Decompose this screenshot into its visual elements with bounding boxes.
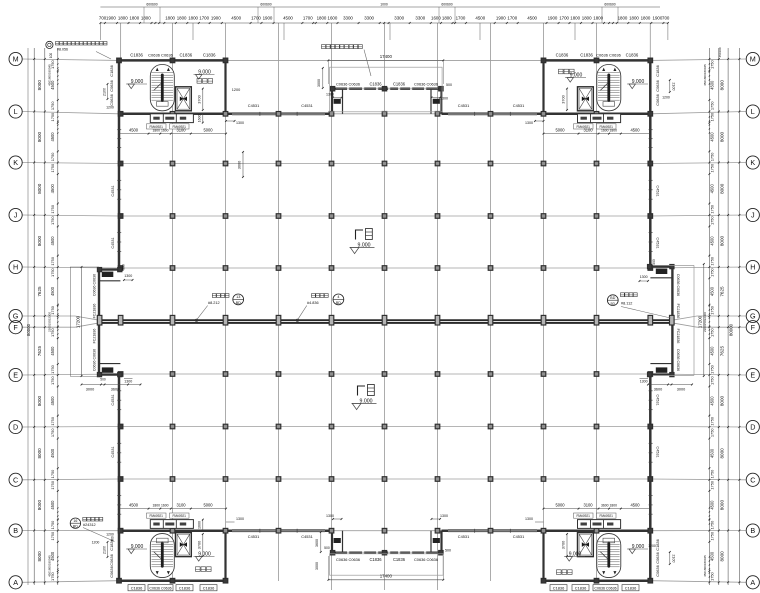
svg-text:C0636 C0636: C0636 C0636 [93, 349, 97, 371]
svg-text:1900: 1900 [496, 16, 506, 21]
svg-text:4500: 4500 [710, 236, 715, 246]
svg-text:3700: 3700 [562, 95, 566, 103]
svg-text:5000: 5000 [203, 503, 213, 508]
svg-text:#8.212: #8.212 [208, 301, 220, 305]
svg-text:L: L [14, 107, 18, 116]
svg-text:A: A [750, 578, 755, 587]
svg-text:C0636 C0636: C0636 C0636 [414, 81, 438, 86]
svg-text:1300: 1300 [124, 274, 132, 278]
svg-text:B: B [13, 526, 18, 535]
svg-text:D: D [13, 423, 18, 432]
svg-text:8000: 8000 [720, 183, 725, 194]
svg-text:1750: 1750 [50, 520, 55, 529]
svg-text:1750: 1750 [50, 428, 55, 437]
svg-text:1300: 1300 [326, 514, 334, 518]
svg-text:C0636 C0636: C0636 C0636 [93, 274, 97, 296]
svg-text:1300: 1300 [236, 517, 244, 521]
svg-text:C4531: C4531 [513, 103, 524, 108]
svg-text:1300: 1300 [640, 275, 648, 279]
svg-text:1750: 1750 [50, 163, 55, 172]
svg-text:7625: 7625 [37, 346, 42, 357]
svg-text:1800: 1800 [188, 16, 198, 21]
svg-text:3000: 3000 [86, 388, 94, 392]
svg-text:C1836: C1836 [203, 53, 216, 58]
svg-text:8000: 8000 [37, 551, 42, 562]
svg-text:1800: 1800 [570, 16, 580, 21]
svg-text:7625: 7625 [37, 286, 42, 297]
svg-text:1800: 1800 [629, 16, 639, 21]
svg-text:4500: 4500 [50, 346, 55, 356]
svg-text:4500: 4500 [630, 127, 640, 132]
svg-text:230015032300: 230015032300 [48, 312, 52, 332]
svg-text:J: J [14, 211, 18, 220]
svg-text:FC21836: FC21836 [676, 304, 680, 319]
svg-text:C0636: C0636 [655, 565, 660, 576]
svg-text:1200: 1200 [106, 106, 114, 110]
svg-text:4500: 4500 [50, 286, 55, 296]
svg-text:13: 13 [236, 295, 240, 299]
svg-text:1900: 1900 [548, 16, 558, 21]
svg-text:3300: 3300 [364, 16, 374, 21]
svg-text:C1836: C1836 [131, 585, 142, 590]
svg-text:1750: 1750 [50, 216, 55, 225]
svg-text:C0636 C0636: C0636 C0636 [676, 274, 680, 296]
svg-text:4500: 4500 [710, 346, 715, 356]
svg-text:C1836: C1836 [109, 65, 114, 76]
svg-text:500: 500 [445, 549, 451, 553]
svg-text:700: 700 [662, 16, 670, 21]
svg-text:E: E [13, 371, 18, 380]
svg-text:80000: 80000 [729, 323, 734, 336]
svg-text:100: 100 [49, 53, 53, 59]
svg-text:C0636: C0636 [655, 80, 660, 91]
svg-text:C4531: C4531 [513, 534, 524, 539]
svg-text:3100: 3100 [583, 127, 593, 132]
svg-text:2100: 2100 [671, 554, 675, 562]
svg-text:4500: 4500 [710, 80, 715, 90]
svg-text:500: 500 [100, 378, 106, 382]
svg-text:M: M [750, 55, 756, 64]
svg-text:300: 300 [111, 536, 115, 542]
svg-text:BD: BD [236, 301, 241, 305]
svg-text:1750: 1750 [710, 112, 715, 121]
svg-text:1750: 1750 [710, 267, 715, 276]
svg-text:1600: 1600 [197, 114, 201, 122]
svg-text:1750: 1750 [710, 520, 715, 529]
svg-text:C0636 C0636: C0636 C0636 [414, 557, 438, 562]
svg-text:4500: 4500 [129, 127, 139, 132]
svg-text:17200: 17200 [75, 315, 80, 328]
svg-text:500: 500 [122, 264, 126, 270]
svg-text:1750: 1750 [50, 101, 55, 110]
svg-text:8000: 8000 [37, 395, 42, 406]
svg-text:1750: 1750 [50, 469, 55, 478]
svg-text:C4531: C4531 [656, 185, 660, 196]
svg-text:1800: 1800 [118, 16, 128, 21]
svg-text:600600: 600600 [146, 3, 157, 7]
svg-text:2100: 2100 [671, 82, 675, 90]
svg-text:1800: 1800 [442, 16, 452, 21]
svg-text:4501800180045: 4501800180045 [48, 555, 52, 577]
svg-text:4500: 4500 [475, 16, 485, 21]
svg-text:4500: 4500 [710, 448, 715, 458]
svg-text:FC21836: FC21836 [93, 304, 97, 319]
svg-text:BD: BD [73, 525, 78, 529]
svg-text:3300: 3300 [343, 16, 353, 21]
svg-text:C0636: C0636 [109, 554, 114, 565]
svg-text:1750: 1750 [50, 256, 55, 265]
svg-text:8000: 8000 [720, 235, 725, 246]
svg-text:C1836: C1836 [575, 585, 586, 590]
svg-text:17200: 17200 [697, 315, 702, 328]
svg-text:C4531: C4531 [656, 394, 660, 405]
svg-text:8000: 8000 [37, 448, 42, 459]
svg-text:J: J [751, 211, 755, 220]
svg-text:3700: 3700 [562, 541, 566, 549]
svg-text:4501800180045: 4501800180045 [48, 64, 52, 86]
svg-text:8000: 8000 [37, 183, 42, 194]
svg-text:3100: 3100 [176, 127, 186, 132]
svg-text:C4531: C4531 [111, 237, 115, 248]
svg-text:1750: 1750 [710, 480, 715, 489]
svg-text:#8.112: #8.112 [621, 302, 632, 306]
svg-text:1800: 1800 [618, 16, 628, 21]
svg-text:4500: 4500 [50, 396, 55, 406]
svg-text:#4.836: #4.836 [307, 301, 319, 305]
svg-text:FC21836: FC21836 [676, 329, 680, 344]
svg-text:8000: 8000 [720, 395, 725, 406]
svg-text:1750: 1750 [710, 428, 715, 437]
svg-text:1750: 1750 [710, 101, 715, 110]
svg-text:3000: 3000 [238, 161, 242, 169]
svg-text:7625: 7625 [720, 286, 725, 297]
svg-text:500: 500 [652, 259, 656, 265]
svg-text:1750: 1750 [50, 112, 55, 121]
svg-text:C1836: C1836 [179, 585, 190, 590]
svg-text:5D: 5D [610, 302, 615, 306]
svg-text:FM#0921: FM#0921 [576, 514, 590, 518]
svg-text:C0636 C0636: C0636 C0636 [336, 81, 360, 86]
svg-text:600600: 600600 [604, 3, 615, 7]
svg-text:4501800180045: 4501800180045 [703, 64, 707, 86]
svg-text:C4531: C4531 [248, 534, 259, 539]
svg-text:4500: 4500 [231, 16, 241, 21]
svg-text:C: C [750, 475, 755, 484]
svg-text:8000: 8000 [37, 131, 42, 142]
svg-text:C1836: C1836 [369, 557, 382, 562]
svg-text:1900: 1900 [211, 16, 221, 21]
svg-text:4500: 4500 [527, 16, 537, 21]
svg-text:1750: 1750 [710, 204, 715, 213]
svg-text:1200: 1200 [648, 544, 656, 548]
svg-text:1750: 1750 [50, 376, 55, 385]
svg-text:3300: 3300 [394, 16, 404, 21]
svg-text:3000: 3000 [677, 388, 685, 392]
svg-text:1750: 1750 [710, 152, 715, 161]
svg-text:C4531: C4531 [248, 103, 259, 108]
svg-text:1700: 1700 [199, 16, 209, 21]
svg-text:1750: 1750 [50, 152, 55, 161]
svg-text:K: K [13, 158, 18, 167]
svg-text:1750: 1750 [710, 216, 715, 225]
svg-text:C1836: C1836 [655, 65, 660, 76]
svg-text:4500: 4500 [50, 132, 55, 142]
svg-text:3600: 3600 [654, 388, 662, 392]
svg-text:1200: 1200 [106, 533, 114, 537]
svg-text:C1836: C1836 [626, 53, 639, 58]
svg-text:5000: 5000 [203, 127, 213, 132]
svg-text:1750: 1750 [710, 328, 715, 337]
svg-text:3000: 3000 [315, 562, 319, 570]
svg-text:500: 500 [446, 83, 452, 87]
svg-text:C0636: C0636 [109, 94, 114, 105]
svg-text:C4531: C4531 [301, 534, 312, 539]
svg-text:C0636 C0636: C0636 C0636 [594, 586, 616, 590]
svg-text:8000: 8000 [37, 80, 42, 91]
svg-text:1800: 1800 [165, 16, 175, 21]
svg-text:1200: 1200 [92, 541, 100, 545]
svg-text:1750: 1750 [50, 480, 55, 489]
svg-text:BD: BD [336, 301, 341, 305]
svg-text:2100: 2100 [102, 88, 106, 96]
svg-text:B: B [750, 526, 755, 535]
svg-text:C1836: C1836 [553, 585, 564, 590]
svg-text:4500: 4500 [50, 448, 55, 458]
svg-text:C0636 C0636: C0636 C0636 [336, 557, 360, 562]
svg-text:1700: 1700 [507, 16, 517, 21]
svg-text:1750: 1750 [50, 267, 55, 276]
svg-text:1800 1600: 1800 1600 [152, 128, 168, 132]
svg-text:1750: 1750 [50, 416, 55, 425]
svg-text:4500: 4500 [710, 132, 715, 142]
svg-text:16: 16 [73, 519, 77, 523]
svg-text:C0636: C0636 [655, 552, 660, 563]
svg-text:1300: 1300 [640, 380, 648, 384]
svg-text:1750: 1750 [50, 364, 55, 373]
svg-text:F: F [13, 323, 18, 332]
svg-text:1800: 1800 [177, 16, 187, 21]
svg-text:7625: 7625 [720, 346, 725, 357]
svg-text:4500: 4500 [710, 184, 715, 194]
svg-text:C4531: C4531 [458, 534, 469, 539]
svg-text:C1836: C1836 [393, 557, 406, 562]
svg-text:4500: 4500 [710, 551, 715, 561]
svg-text:1600: 1600 [328, 16, 338, 21]
svg-text:1300: 1300 [525, 121, 533, 125]
svg-text:FM#0921: FM#0921 [172, 514, 186, 518]
svg-text:C1836: C1836 [130, 53, 143, 58]
svg-text:F: F [751, 323, 756, 332]
svg-text:4500: 4500 [129, 503, 139, 508]
svg-text:1750: 1750 [710, 469, 715, 478]
svg-text:600600: 600600 [441, 3, 452, 7]
svg-text:1600: 1600 [431, 16, 441, 21]
svg-text:4500: 4500 [710, 286, 715, 296]
svg-text:BD: BD [610, 296, 615, 300]
svg-text:1800: 1800 [582, 16, 592, 21]
svg-text:2100: 2100 [102, 546, 106, 554]
svg-text:4500: 4500 [630, 503, 640, 508]
svg-text:1800: 1800 [141, 16, 151, 21]
svg-text:1300: 1300 [440, 97, 448, 101]
svg-text:600600: 600600 [260, 3, 271, 7]
svg-text:C0636 C0636: C0636 C0636 [149, 586, 171, 590]
svg-text:1750: 1750 [50, 531, 55, 540]
svg-text:C0636 C0636: C0636 C0636 [148, 53, 173, 58]
svg-text:4500: 4500 [710, 500, 715, 510]
svg-text:1700: 1700 [251, 16, 261, 21]
svg-text:8000: 8000 [720, 551, 725, 562]
svg-text:1200: 1200 [662, 96, 670, 100]
svg-text:C1836: C1836 [179, 53, 192, 58]
svg-text:8000: 8000 [720, 80, 725, 91]
svg-text:C4531: C4531 [111, 446, 115, 457]
svg-text:1900: 1900 [263, 16, 273, 21]
svg-text:1750: 1750 [710, 163, 715, 172]
svg-text:C0636: C0636 [109, 80, 114, 91]
svg-text:80000: 80000 [26, 323, 31, 336]
svg-text:1750: 1750 [710, 531, 715, 540]
svg-text:C1836: C1836 [369, 81, 382, 86]
svg-text:8000: 8000 [720, 131, 725, 142]
svg-text:8000: 8000 [720, 448, 725, 459]
svg-text:#24312: #24312 [83, 523, 96, 527]
svg-text:C4531: C4531 [656, 446, 660, 457]
svg-text:G: G [13, 312, 19, 321]
svg-text:C4531: C4531 [111, 185, 115, 196]
svg-text:1800: 1800 [129, 16, 139, 21]
svg-text:L: L [751, 107, 755, 116]
svg-text:1750: 1750 [710, 60, 715, 69]
svg-text:C1836: C1836 [393, 81, 406, 86]
svg-text:3100: 3100 [176, 503, 186, 508]
svg-text:1300: 1300 [236, 121, 244, 125]
svg-text:3000: 3000 [317, 79, 321, 87]
svg-text:C4531: C4531 [458, 103, 469, 108]
svg-text:450100: 450100 [718, 47, 722, 57]
svg-text:1750: 1750 [710, 364, 715, 373]
svg-text:1300: 1300 [440, 514, 448, 518]
svg-text:C: C [13, 475, 18, 484]
svg-text:5000: 5000 [555, 127, 565, 132]
svg-text:1600 1800: 1600 1800 [601, 128, 617, 132]
svg-text:1000: 1000 [380, 3, 388, 7]
svg-text:A: A [13, 578, 18, 587]
svg-text:G: G [750, 312, 756, 321]
svg-text:C0636: C0636 [109, 566, 114, 577]
svg-text:H: H [13, 263, 18, 272]
svg-text:C4531: C4531 [301, 103, 312, 108]
svg-text:1300: 1300 [326, 93, 334, 97]
svg-text:1750: 1750 [710, 571, 715, 580]
svg-text:C4531: C4531 [111, 394, 115, 405]
svg-text:4500: 4500 [283, 16, 293, 21]
svg-text:3700: 3700 [197, 541, 201, 549]
svg-text:1200: 1200 [232, 88, 240, 92]
svg-text:1600: 1600 [197, 521, 201, 529]
svg-text:E: E [750, 371, 755, 380]
svg-text:3300: 3300 [415, 16, 425, 21]
svg-text:8000: 8000 [37, 235, 42, 246]
svg-text:8000: 8000 [37, 500, 42, 511]
svg-text:3100: 3100 [583, 503, 593, 508]
svg-text:1750: 1750 [710, 305, 715, 314]
svg-text:C4531: C4531 [656, 237, 660, 248]
svg-text:1800 1600: 1800 1600 [152, 504, 168, 508]
svg-text:K: K [750, 158, 755, 167]
svg-text:1750: 1750 [50, 204, 55, 213]
svg-text:17400: 17400 [380, 54, 393, 59]
svg-text:4500: 4500 [50, 236, 55, 246]
svg-text:1700: 1700 [456, 16, 466, 21]
svg-text:FM#0921: FM#0921 [599, 514, 613, 518]
svg-text:4500: 4500 [50, 184, 55, 194]
svg-text:D: D [750, 423, 755, 432]
svg-text:C0636 C0636: C0636 C0636 [596, 53, 621, 58]
svg-text:3600: 3600 [315, 539, 319, 547]
svg-text:C1836: C1836 [203, 585, 214, 590]
svg-text:5000: 5000 [555, 503, 565, 508]
svg-text:1750: 1750 [710, 256, 715, 265]
svg-text:1300: 1300 [124, 380, 132, 384]
svg-text:C0636: C0636 [655, 94, 660, 105]
svg-text:4500: 4500 [710, 396, 715, 406]
svg-text:C1836: C1836 [580, 53, 593, 58]
svg-text:4501800180045: 4501800180045 [703, 555, 707, 577]
svg-text:1700: 1700 [303, 16, 313, 21]
svg-text:1800: 1800 [641, 16, 651, 21]
svg-text:C1836: C1836 [556, 53, 569, 58]
svg-text:1800: 1800 [317, 16, 327, 21]
svg-text:3700: 3700 [197, 95, 201, 103]
svg-text:C0636 C0636: C0636 C0636 [676, 349, 680, 371]
svg-text:1300: 1300 [525, 517, 533, 521]
svg-text:1750: 1750 [710, 376, 715, 385]
svg-text:17400: 17400 [380, 574, 393, 579]
svg-text:1700: 1700 [559, 16, 569, 21]
svg-text:C1836: C1836 [625, 585, 636, 590]
svg-text:4: 4 [337, 295, 339, 299]
svg-text:3600 1800: 3600 1800 [601, 504, 617, 508]
svg-text:8000: 8000 [720, 500, 725, 511]
svg-text:FC21836: FC21836 [93, 329, 97, 344]
svg-text:1900: 1900 [106, 16, 116, 21]
svg-text:FM#0921: FM#0921 [149, 514, 163, 518]
svg-text:M: M [13, 55, 19, 64]
svg-text:3600: 3600 [111, 388, 119, 392]
svg-text:H: H [750, 263, 755, 272]
svg-text:500: 500 [324, 546, 330, 550]
svg-text:1750: 1750 [710, 416, 715, 425]
svg-text:4500: 4500 [50, 500, 55, 510]
svg-text:#8.056: #8.056 [57, 48, 68, 52]
